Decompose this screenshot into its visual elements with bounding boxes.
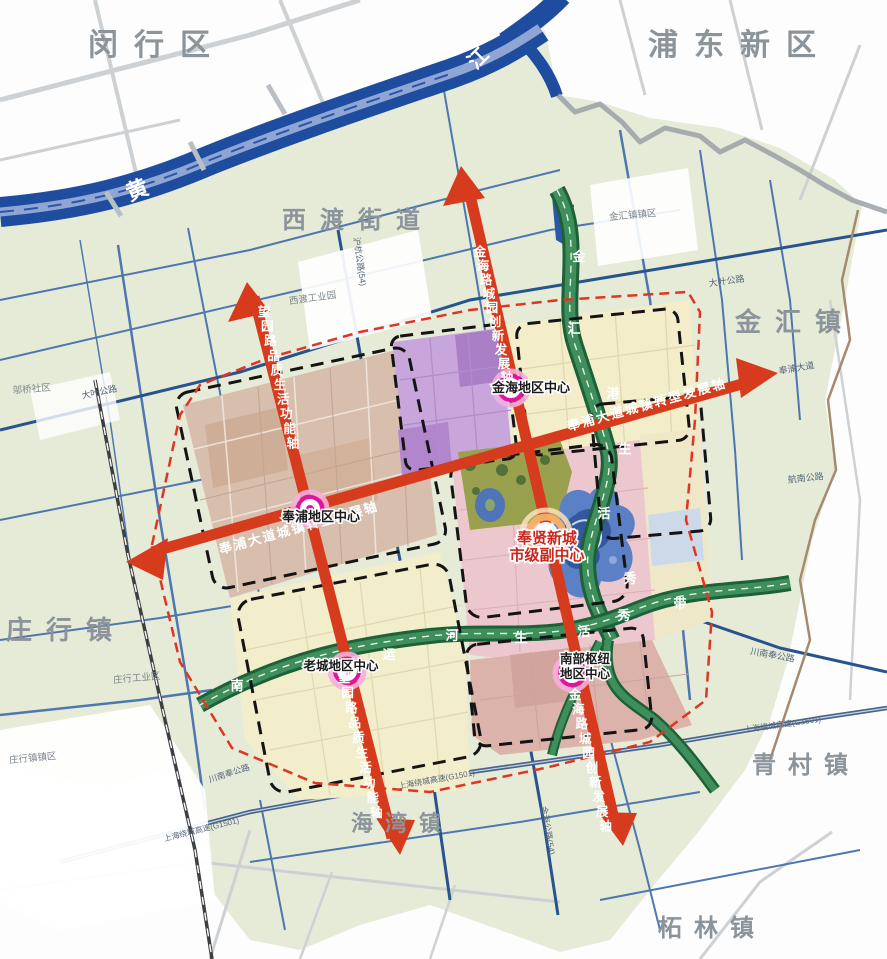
axis_labels-char: 品: [267, 349, 280, 363]
axis_labels-char: 能: [283, 421, 296, 436]
corridor_chars-label: 金: [571, 249, 586, 264]
axis_labels-char: 发: [592, 789, 606, 804]
axis_labels-char: 能: [367, 790, 380, 805]
area-center-label: 地区中心: [560, 666, 611, 681]
districts-label: 海湾镇: [351, 811, 453, 836]
districts-label: 青村镇: [752, 752, 860, 779]
map-svg: 闵行区浦东新区金汇镇庄行镇青村镇柘林镇海湾镇西渡街道西渡工业园庄行工业区庄行镇镇…: [0, 0, 887, 959]
districts-label: 金汇镇: [734, 307, 855, 337]
districts-label: 浦东新区: [648, 28, 832, 62]
axis_labels-char: 品: [349, 716, 362, 730]
area-center-label: 金海地区中心: [491, 380, 570, 395]
corridor_chars-label: 港: [606, 386, 620, 401]
axis_labels-char: 轴: [370, 805, 383, 820]
axis_labels-char: 城: [579, 731, 592, 746]
axis_labels-char: 园: [486, 301, 499, 315]
axis_labels-char: 海: [572, 702, 585, 717]
axis_labels-char: 活: [277, 392, 290, 407]
axis_labels-char: 望: [258, 304, 271, 319]
area-center-label: 南部枢纽: [560, 651, 611, 666]
axis_labels-char: 功: [363, 775, 376, 790]
districts-label: 闵行区: [88, 29, 226, 62]
axis_labels-char: 路: [345, 700, 358, 715]
axis_labels-char: 路: [264, 333, 277, 348]
corridor_chars-label: 秀: [622, 571, 637, 586]
axis_labels-char: 活: [359, 760, 372, 775]
corridor_chars-label: 生: [514, 630, 527, 645]
axis_labels-char: 海: [477, 258, 490, 273]
corridor_chars-label: 活: [577, 624, 590, 639]
axis_labels-char: 园: [261, 320, 274, 334]
axis_labels-char: 创: [585, 760, 599, 775]
districts-label: 西渡街道: [282, 206, 434, 234]
corridor_chars-label: 生: [618, 441, 631, 456]
districts-label: 庄行镇: [6, 615, 126, 645]
corridor_chars-label: 运: [382, 647, 395, 662]
corridor_chars-label: 秀: [616, 608, 631, 623]
axis_labels-char: 路: [480, 272, 493, 287]
axis_labels-char: 园: [341, 686, 354, 700]
area-center-label: 奉浦地区中心: [281, 509, 360, 524]
axis_labels-char: 新: [589, 775, 602, 790]
axis_labels-char: 新: [492, 328, 505, 343]
axis_labels-char: 园: [582, 746, 595, 760]
fengxian-new-city-planning-map: 闵行区浦东新区金汇镇庄行镇青村镇柘林镇海湾镇西渡街道西渡工业园庄行工业区庄行镇镇…: [0, 0, 887, 959]
axis_labels-char: 生: [274, 377, 287, 392]
corridor_chars-label: 活: [597, 506, 610, 521]
axis_labels-char: 展: [596, 805, 609, 819]
axis_labels-char: 质: [271, 362, 284, 377]
axis_labels-char: 轴: [287, 435, 300, 450]
axis_labels-char: 功: [280, 406, 293, 421]
axis_labels-char: 生: [356, 745, 369, 760]
axis_labels-char: 金: [473, 244, 487, 259]
corridor_chars-label: 南: [230, 678, 243, 693]
main-center-label: 奉贤新城: [516, 529, 577, 547]
districts-label: 柘林镇: [658, 915, 766, 942]
main-center-label: 市级副中心: [509, 546, 584, 564]
axis_labels-char: 发: [494, 342, 508, 357]
area-center-label: 老城地区中心: [302, 658, 379, 673]
axis_labels-char: 轴: [599, 818, 612, 833]
axis_labels-char: 质: [352, 730, 365, 745]
axis_labels-char: 路: [576, 716, 589, 731]
axis_labels-char: 金: [568, 687, 582, 702]
corridor_chars-label: 河: [445, 628, 458, 643]
axis_labels-char: 展: [498, 357, 511, 371]
axis_labels-char: 城: [483, 286, 496, 301]
corridor_chars-label: 汇: [567, 321, 580, 336]
axis_labels-char: 创: [488, 314, 502, 329]
corridor_chars-label: 带: [673, 596, 686, 611]
